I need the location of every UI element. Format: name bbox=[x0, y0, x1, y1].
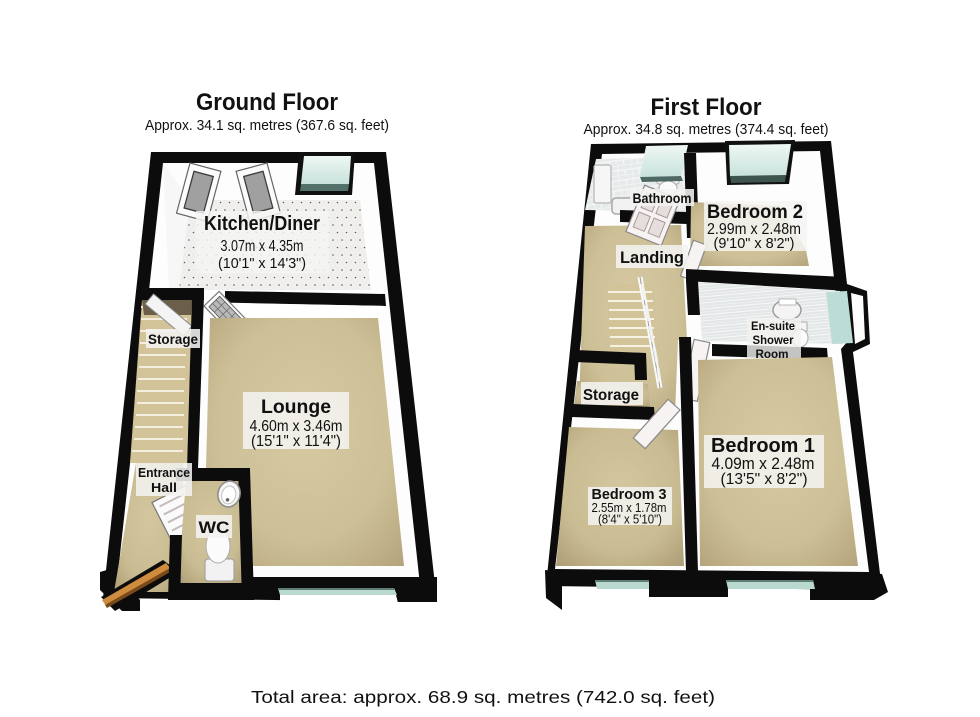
svg-text:Shower: Shower bbox=[753, 333, 794, 347]
svg-text:(15'1" x 11'4"): (15'1" x 11'4") bbox=[251, 433, 341, 450]
svg-text:Storage: Storage bbox=[148, 332, 198, 347]
svg-text:Entrance: Entrance bbox=[138, 466, 190, 480]
svg-text:Bedroom 2: Bedroom 2 bbox=[707, 202, 803, 223]
svg-text:(9'10" x 8'2"): (9'10" x 8'2") bbox=[714, 235, 795, 252]
svg-text:(10'1" x 14'3"): (10'1" x 14'3") bbox=[218, 255, 306, 272]
svg-text:First Floor: First Floor bbox=[651, 94, 762, 121]
svg-text:WC: WC bbox=[199, 518, 230, 537]
svg-text:(8'4" x 5'10"): (8'4" x 5'10") bbox=[598, 513, 662, 527]
svg-text:Ground Floor: Ground Floor bbox=[196, 89, 338, 116]
svg-text:Total area: approx. 68.9 sq. m: Total area: approx. 68.9 sq. metres (742… bbox=[251, 687, 715, 707]
svg-text:(13'5" x 8'2"): (13'5" x 8'2") bbox=[721, 471, 808, 488]
svg-text:Bathroom: Bathroom bbox=[633, 191, 692, 206]
svg-text:Hall: Hall bbox=[151, 481, 177, 495]
svg-text:Landing: Landing bbox=[620, 248, 684, 267]
svg-text:Bedroom 1: Bedroom 1 bbox=[711, 435, 815, 457]
svg-text:3.07m x 4.35m: 3.07m x 4.35m bbox=[221, 238, 304, 255]
svg-text:Approx. 34.1 sq. metres (367.6: Approx. 34.1 sq. metres (367.6 sq. feet) bbox=[145, 117, 389, 134]
svg-text:Approx. 34.8 sq. metres (374.4: Approx. 34.8 sq. metres (374.4 sq. feet) bbox=[584, 121, 829, 138]
svg-text:Kitchen/Diner: Kitchen/Diner bbox=[204, 213, 320, 235]
svg-text:Lounge: Lounge bbox=[261, 397, 331, 418]
svg-text:En-suite: En-suite bbox=[751, 319, 795, 333]
svg-text:Storage: Storage bbox=[583, 387, 639, 404]
